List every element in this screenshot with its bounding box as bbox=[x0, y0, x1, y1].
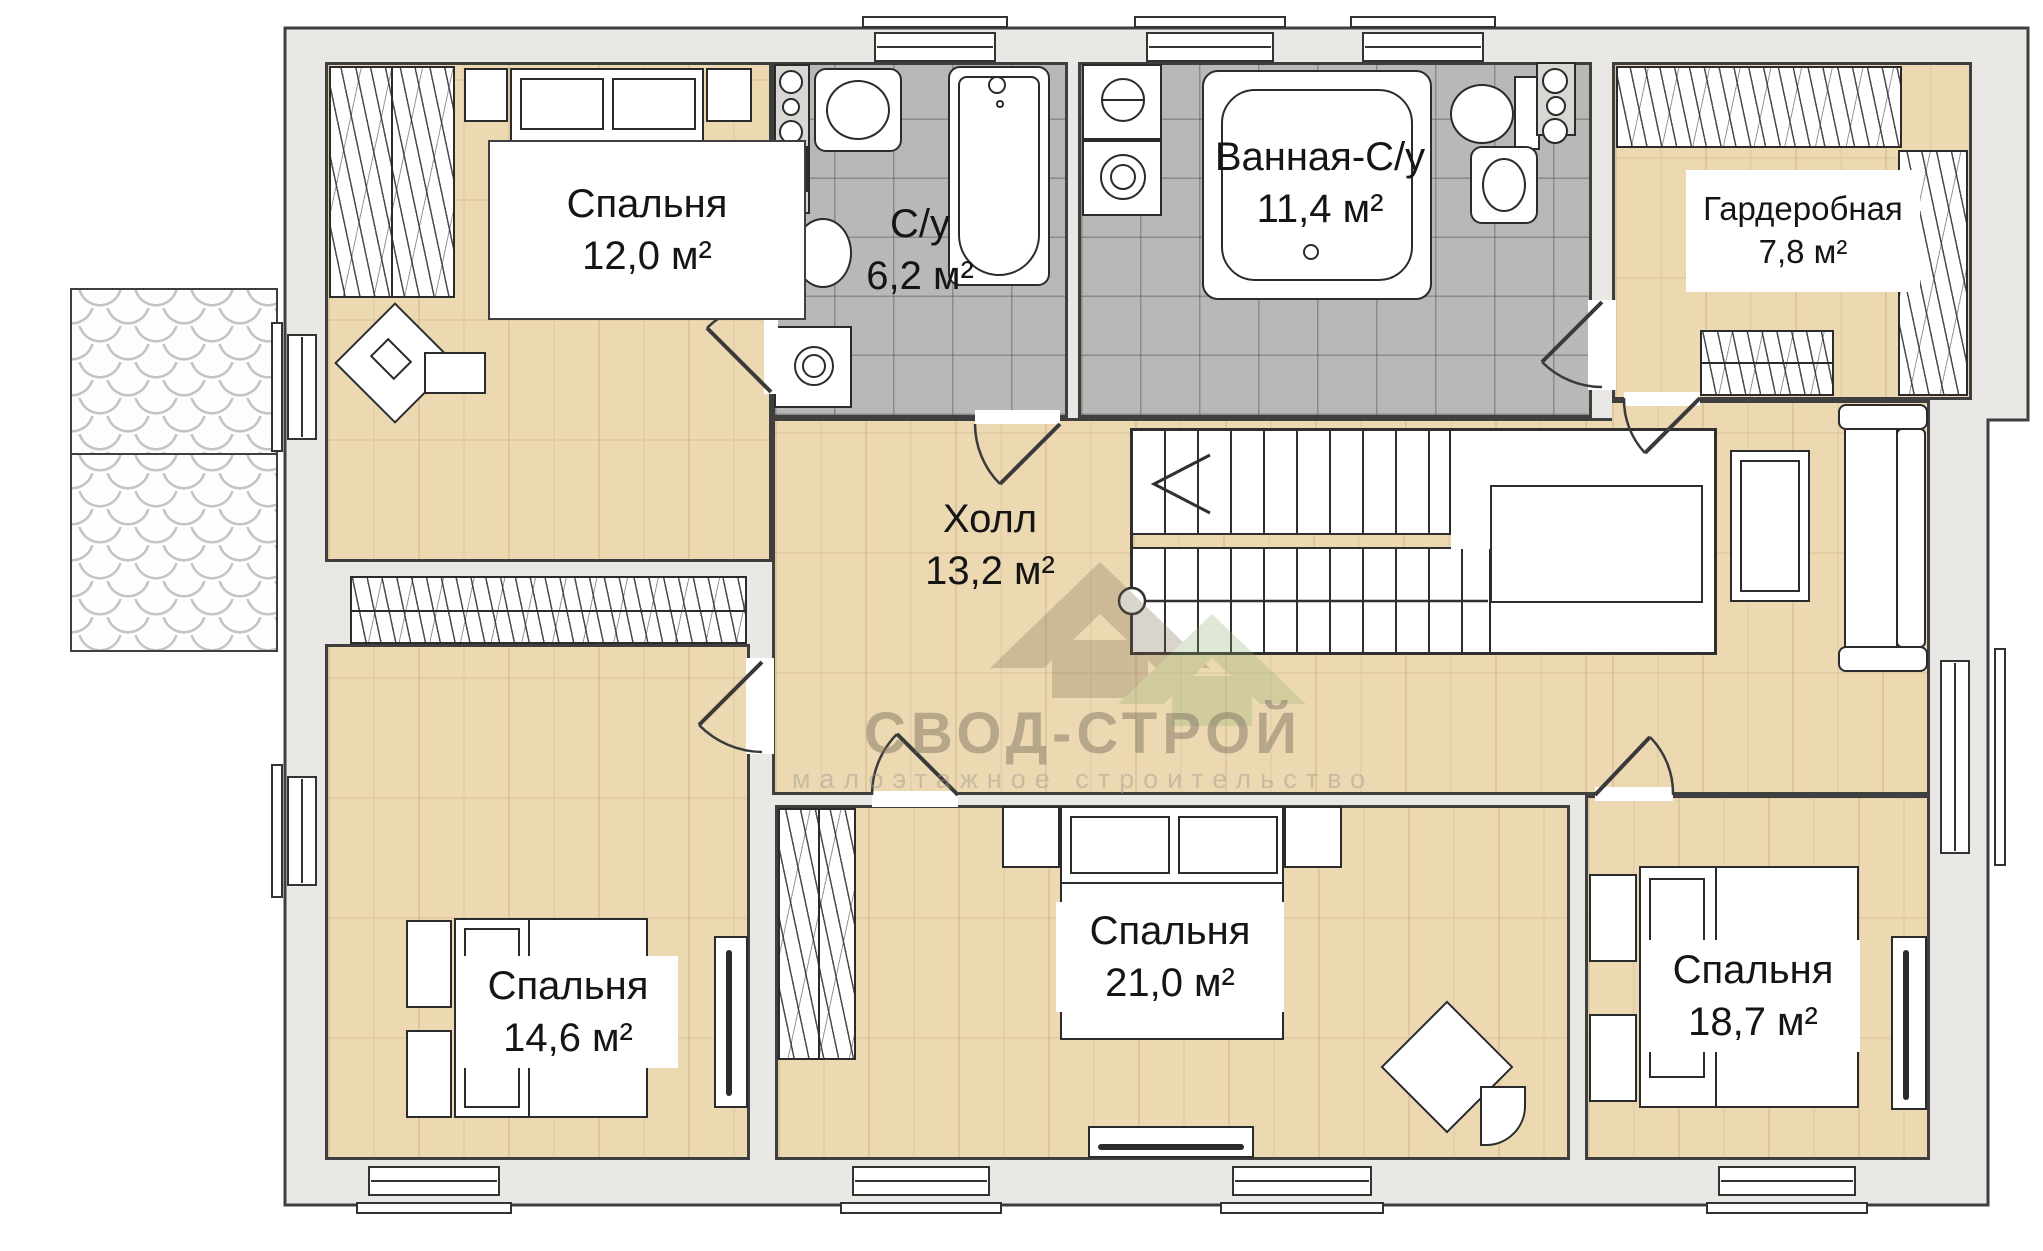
window-sill bbox=[356, 1202, 512, 1214]
window-sill bbox=[1706, 1202, 1868, 1214]
room-label-bedroom-bottom-left: Спальня 14,6 м² bbox=[458, 956, 678, 1068]
room-name: Спальня bbox=[567, 178, 728, 230]
room-name: Холл bbox=[943, 493, 1037, 545]
room-label-hall: Холл 13,2 м² bbox=[880, 480, 1100, 610]
room-area: 12,0 м² bbox=[582, 230, 712, 282]
window-sill bbox=[271, 322, 283, 452]
window bbox=[1232, 1166, 1372, 1196]
floor-plan: Спальня 12,0 м² С/у 6,2 м² Ванная-С/у 11… bbox=[0, 0, 2043, 1251]
window-sill bbox=[1350, 16, 1496, 28]
room-area: 11,4 м² bbox=[1257, 183, 1384, 235]
window bbox=[368, 1166, 500, 1196]
window bbox=[874, 32, 996, 62]
window bbox=[1940, 660, 1970, 854]
room-area: 18,7 м² bbox=[1688, 996, 1818, 1048]
room-area: 21,0 м² bbox=[1105, 957, 1235, 1009]
watermark-title: СВОД-СТРОЙ bbox=[758, 700, 1408, 767]
window-sill bbox=[271, 764, 283, 898]
room-label-bedroom-top-left: Спальня 12,0 м² bbox=[488, 140, 806, 320]
window bbox=[1718, 1166, 1856, 1196]
room-name: С/у bbox=[890, 198, 950, 250]
watermark-subtitle: малоэтажное строительство bbox=[758, 764, 1408, 795]
room-area: 6,2 м² bbox=[866, 250, 974, 302]
room-label-bathroom: Ванная-С/у 11,4 м² bbox=[1180, 118, 1460, 248]
room-area: 7,8 м² bbox=[1759, 231, 1848, 274]
window bbox=[852, 1166, 990, 1196]
room-area: 14,6 м² bbox=[503, 1012, 633, 1064]
room-label-wc: С/у 6,2 м² bbox=[800, 190, 1040, 310]
room-label-bedroom-bottom-right: Спальня 18,7 м² bbox=[1646, 940, 1860, 1052]
room-name: Спальня bbox=[1090, 905, 1251, 957]
room-name: Спальня bbox=[488, 960, 649, 1012]
room-label-wardrobe: Гардеробная 7,8 м² bbox=[1686, 170, 1920, 292]
room-name: Гардеробная bbox=[1703, 188, 1903, 231]
window bbox=[287, 776, 317, 886]
window-sill bbox=[1994, 648, 2006, 866]
window-sill bbox=[862, 16, 1008, 28]
room-label-bedroom-bottom-center: Спальня 21,0 м² bbox=[1056, 902, 1284, 1012]
window bbox=[287, 334, 317, 440]
window-sill bbox=[1134, 16, 1286, 28]
room-area: 13,2 м² bbox=[925, 545, 1055, 597]
window bbox=[1362, 32, 1484, 62]
room-name: Спальня bbox=[1673, 944, 1834, 996]
window bbox=[1146, 32, 1274, 62]
window-sill bbox=[1220, 1202, 1384, 1214]
window-sill bbox=[840, 1202, 1002, 1214]
room-name: Ванная-С/у bbox=[1215, 131, 1425, 183]
